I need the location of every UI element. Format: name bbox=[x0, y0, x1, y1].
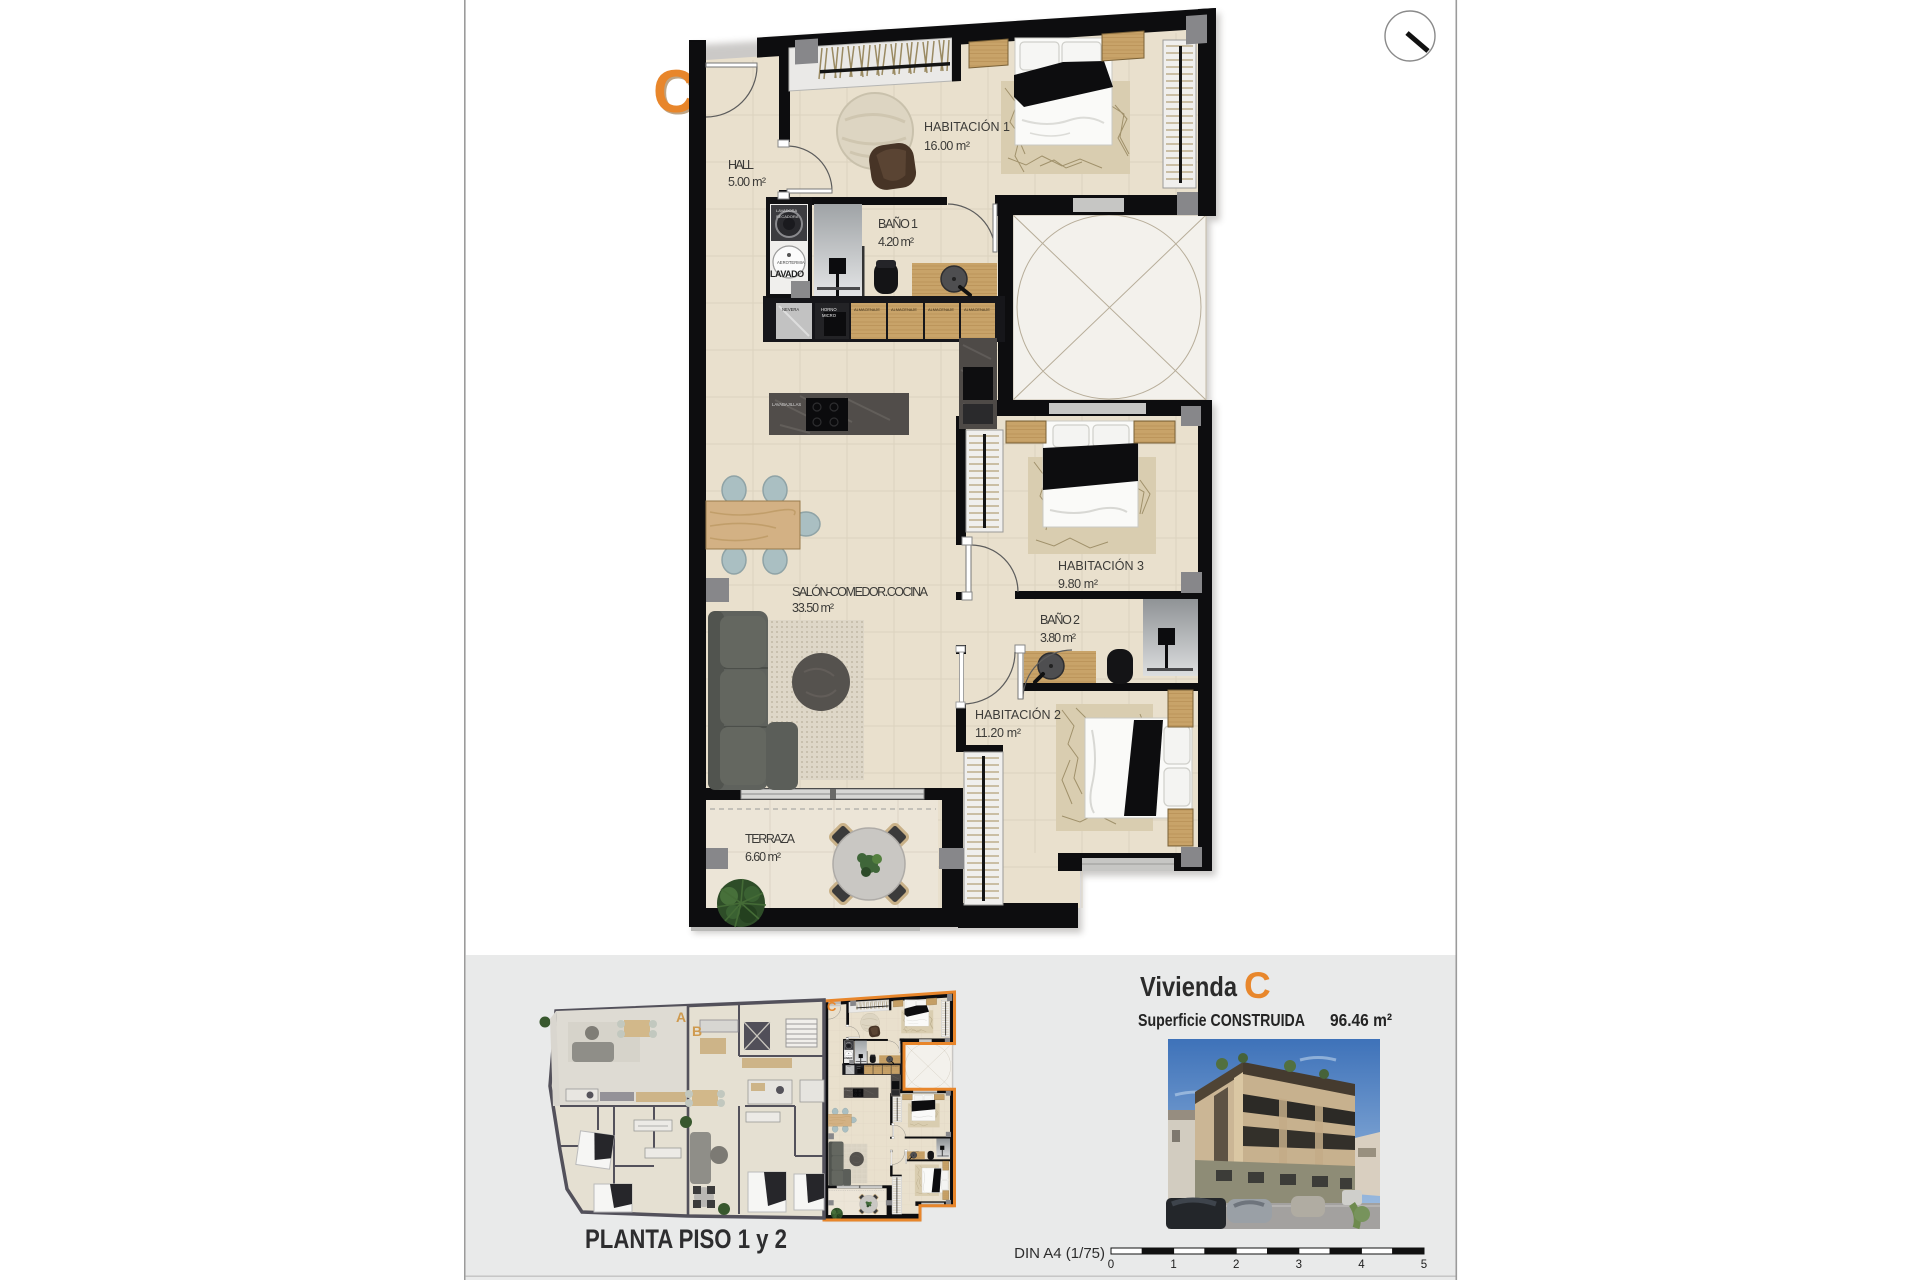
svg-text:C: C bbox=[827, 999, 837, 1014]
svg-text:C: C bbox=[1244, 965, 1271, 1006]
svg-text:TERRAZA: TERRAZA bbox=[745, 832, 796, 846]
svg-text:Superficie CONSTRUIDA: Superficie CONSTRUIDA bbox=[1138, 1010, 1305, 1030]
svg-text:16.00 m²: 16.00 m² bbox=[924, 139, 970, 153]
svg-text:9.80 m²: 9.80 m² bbox=[1058, 577, 1098, 591]
svg-text:HORNO: HORNO bbox=[821, 307, 837, 312]
svg-text:11.20 m²: 11.20 m² bbox=[975, 726, 1021, 740]
svg-text:A: A bbox=[676, 1009, 686, 1025]
svg-text:96.46 m²: 96.46 m² bbox=[1330, 1010, 1392, 1030]
svg-text:B: B bbox=[692, 1023, 702, 1039]
svg-text:PLANTA PISO 1 y 2: PLANTA PISO 1 y 2 bbox=[585, 1224, 787, 1254]
svg-text:33.50 m²: 33.50 m² bbox=[792, 601, 834, 615]
svg-text:HABITACIÓN 1: HABITACIÓN 1 bbox=[924, 119, 1010, 134]
svg-text:4: 4 bbox=[1358, 1259, 1365, 1271]
svg-text:LAVADORA: LAVADORA bbox=[776, 208, 798, 213]
svg-text:Vivienda: Vivienda bbox=[1140, 971, 1237, 1002]
svg-text:BAÑO 2: BAÑO 2 bbox=[1040, 613, 1080, 627]
svg-text:DIN A4 (1/75): DIN A4 (1/75) bbox=[1014, 1245, 1105, 1262]
svg-text:4.20 m²: 4.20 m² bbox=[878, 235, 914, 249]
svg-text:ALMACENAJE: ALMACENAJE bbox=[964, 307, 990, 312]
svg-text:HALL: HALL bbox=[728, 158, 754, 172]
svg-text:5: 5 bbox=[1421, 1259, 1427, 1271]
svg-text:HABITACIÓN 3: HABITACIÓN 3 bbox=[1058, 558, 1144, 573]
svg-text:2: 2 bbox=[1233, 1259, 1239, 1271]
svg-text:LAVABAJILLAS: LAVABAJILLAS bbox=[772, 402, 801, 407]
svg-text:NEVERA: NEVERA bbox=[782, 307, 799, 312]
svg-text:0: 0 bbox=[1108, 1259, 1114, 1271]
svg-text:ALMACENAJE: ALMACENAJE bbox=[854, 307, 880, 312]
svg-text:3: 3 bbox=[1296, 1259, 1302, 1271]
svg-text:3.80 m²: 3.80 m² bbox=[1040, 631, 1076, 645]
svg-text:1: 1 bbox=[1170, 1259, 1176, 1271]
svg-text:AEROTERMIA: AEROTERMIA bbox=[777, 260, 805, 265]
svg-text:SALÓN-COMEDOR.COCINA: SALÓN-COMEDOR.COCINA bbox=[792, 584, 929, 599]
svg-text:BAÑO 1: BAÑO 1 bbox=[878, 217, 918, 231]
svg-text:ALMACENAJE: ALMACENAJE bbox=[928, 307, 954, 312]
svg-text:SECADORA: SECADORA bbox=[776, 214, 799, 219]
svg-text:MICRO: MICRO bbox=[822, 313, 837, 318]
svg-text:5.00 m²: 5.00 m² bbox=[728, 175, 766, 189]
svg-text:HABITACIÓN 2: HABITACIÓN 2 bbox=[975, 707, 1061, 722]
svg-text:6.60 m²: 6.60 m² bbox=[745, 850, 781, 864]
svg-text:ALMACENAJE: ALMACENAJE bbox=[891, 307, 917, 312]
svg-text:LAVADO: LAVADO bbox=[770, 269, 804, 279]
